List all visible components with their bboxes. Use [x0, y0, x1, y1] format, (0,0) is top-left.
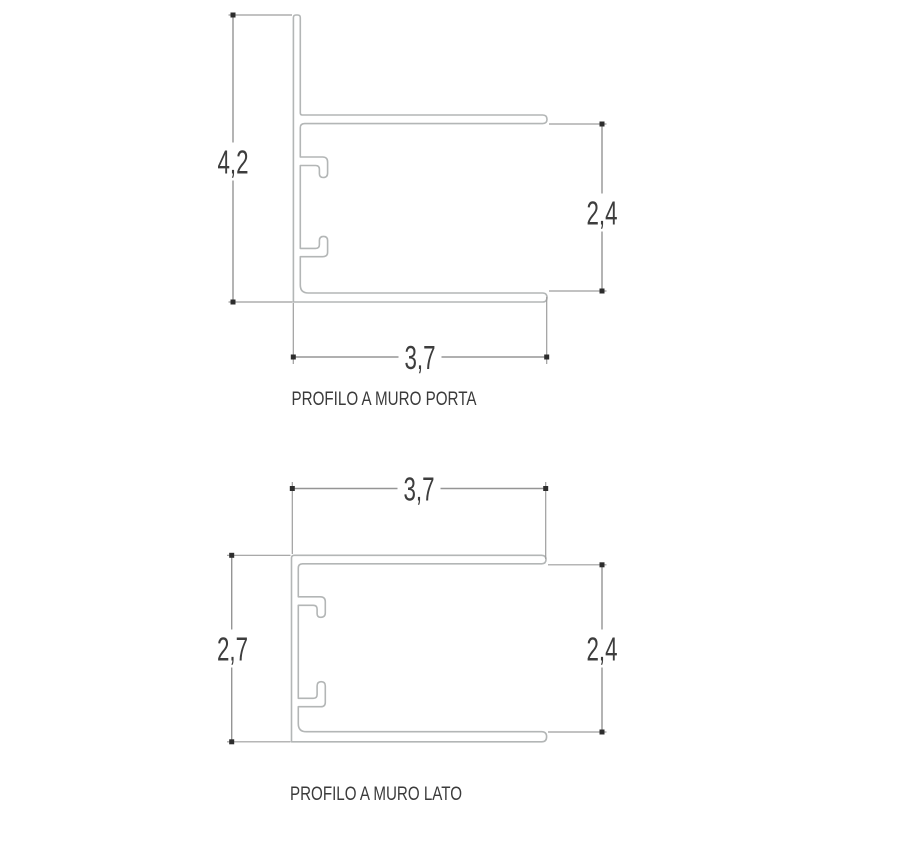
profiles-diagram: 4,2 2,4 3,7 PROFILO A MURO PORTA	[0, 0, 900, 856]
dim-porta-overall-width: 3,7	[291, 297, 549, 376]
profile-outline-lato	[292, 555, 547, 742]
arrow-marker	[291, 355, 296, 360]
dim-label-overall-height: 2,7	[217, 631, 248, 668]
drawing-porta: 4,2 2,4 3,7 PROFILO A MURO PORTA	[215, 13, 622, 411]
caption-lato: PROFILO A MURO LATO	[290, 784, 462, 805]
arrow-marker	[229, 553, 234, 558]
profile-outline-porta	[293, 15, 547, 302]
drawing-sheet: 4,2 2,4 3,7 PROFILO A MURO PORTA	[0, 0, 900, 856]
dim-lato-overall-height: 2,7	[214, 553, 291, 745]
arrow-marker	[229, 739, 234, 744]
dim-porta-inner-height: 2,4	[549, 122, 621, 294]
arrow-marker	[600, 730, 605, 735]
dim-lato-inner-height: 2,4	[548, 562, 621, 734]
dim-porta-overall-height: 4,2	[215, 13, 293, 305]
dim-label-inner-height: 2,4	[587, 195, 618, 232]
caption-porta: PROFILO A MURO PORTA	[292, 389, 477, 410]
drawing-lato: 3,7 2,7 2,4 PROFILO A MURO LATO	[214, 470, 622, 805]
dim-label-overall-width: 3,7	[404, 471, 435, 508]
arrow-marker	[600, 562, 605, 567]
arrow-marker	[600, 289, 605, 294]
dim-label-overall-height: 4,2	[218, 144, 249, 181]
arrow-marker	[544, 355, 549, 360]
arrow-marker	[290, 486, 295, 491]
dim-lato-overall-width: 3,7	[290, 470, 548, 559]
arrow-marker	[231, 300, 236, 305]
dim-label-inner-height: 2,4	[587, 631, 618, 668]
dim-label-overall-width: 3,7	[405, 339, 436, 376]
arrow-marker	[231, 13, 236, 18]
arrow-marker	[543, 486, 548, 491]
arrow-marker	[600, 122, 605, 127]
